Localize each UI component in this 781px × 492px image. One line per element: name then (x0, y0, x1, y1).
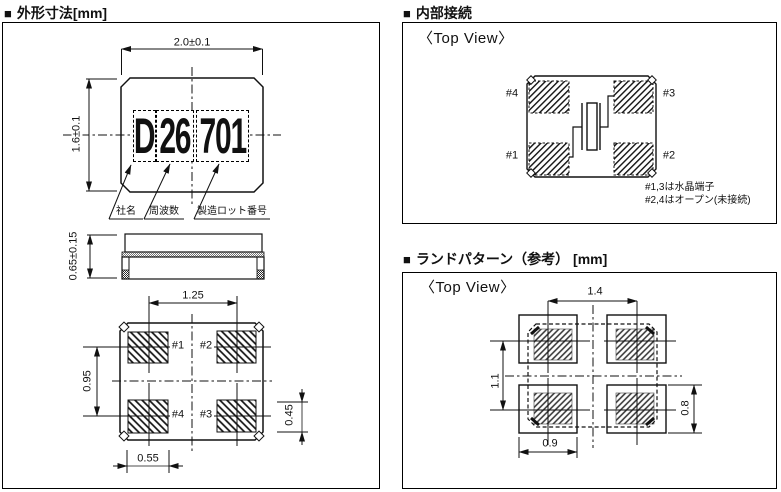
technical-drawing-canvas (0, 0, 781, 492)
internal-top-view-label: 〈Top View〉 (418, 31, 514, 46)
marking-company-code: D (134, 111, 154, 161)
pad-2 (614, 143, 653, 175)
internal-pad-label-3: #3 (663, 89, 675, 100)
pad-label-3: #3 (200, 410, 212, 421)
datasheet-page: ■ 外形寸法[mm] ■ 内部接続 ■ ランドパターン（参考） [mm] (0, 0, 781, 492)
land-top-view-label: 〈Top View〉 (420, 280, 516, 295)
legend-frequency: 周波数 (149, 207, 179, 217)
terminal-foot-right (257, 270, 264, 279)
pad-label-1: #1 (172, 341, 184, 352)
package-body-side (122, 257, 264, 279)
marking-box-lot: 701 (196, 110, 249, 162)
dim-width-label: 2.0±0.1 (174, 38, 211, 49)
package-lid (125, 234, 262, 252)
seam-layer (122, 252, 264, 257)
crystal-symbol (569, 96, 614, 157)
dim-land-width-label: 0.9 (542, 439, 557, 450)
outline-bottom-view (83, 296, 308, 473)
dim-pad-pitch-x-label: 1.25 (182, 291, 203, 302)
internal-note-2: #2,4はオープン(未接続) (645, 194, 751, 207)
dim-thickness-label: 0.65±0.15 (69, 231, 80, 282)
internal-connection-view (527, 76, 656, 177)
pad-label-2: #2 (200, 341, 212, 352)
chip-pad-tl (534, 329, 572, 360)
chip-pad-tr (616, 329, 654, 360)
pad-3 (614, 81, 653, 113)
terminal-foot-left (122, 270, 129, 279)
pad-1 (529, 143, 569, 175)
dim-land-pitch-y-label: 1.1 (491, 372, 502, 389)
lead-to-pad3 (600, 96, 614, 127)
legend-company: 社名 (116, 207, 136, 217)
internal-pad-label-2: #2 (663, 151, 675, 162)
pad-4 (529, 81, 569, 113)
land-pattern-view (490, 301, 702, 458)
marking-box-frequency: 26 (156, 110, 194, 162)
dim-height-label: 1.6±0.1 (72, 115, 83, 154)
dim-land-height-label: 0.8 (681, 399, 692, 416)
marking-lot-code: 701 (199, 111, 245, 161)
internal-pad-label-1: #1 (506, 151, 518, 162)
chip-pad-br (616, 393, 654, 424)
dim-pad-height-label: 0.45 (285, 403, 296, 426)
lead-to-pad1 (569, 127, 582, 157)
marking-box-company: D (133, 110, 156, 162)
internal-note-1: #1,3は水晶端子 (645, 181, 714, 194)
marking-frequency-code: 26 (160, 111, 191, 161)
outline-side-view (87, 234, 264, 279)
dim-land-pitch-x-label: 1.4 (587, 287, 602, 298)
dim-pad-pitch-y-label: 0.95 (83, 369, 94, 392)
dim-pad-width-label: 0.55 (137, 454, 158, 465)
chip-pad-bl (534, 393, 572, 424)
legend-lot: 製造ロット番号 (197, 207, 267, 217)
internal-pad-label-4: #4 (506, 89, 518, 100)
pad-label-4: #4 (172, 410, 184, 421)
